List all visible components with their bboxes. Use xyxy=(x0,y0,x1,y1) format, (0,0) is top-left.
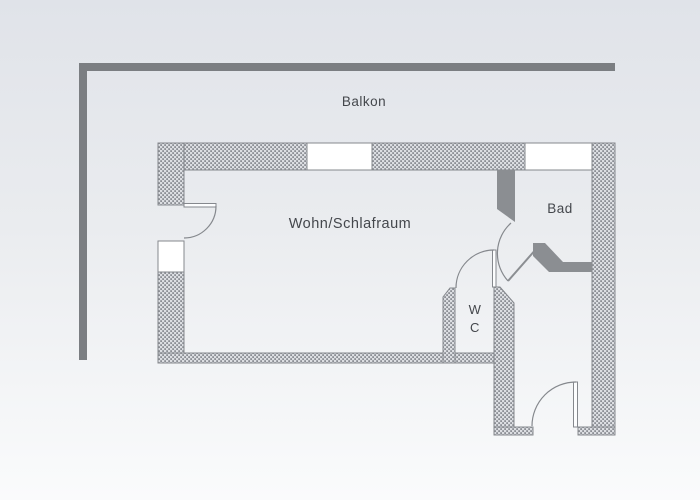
bath-door-arc xyxy=(497,223,511,281)
wc-right-wall xyxy=(494,287,514,435)
top-wall-window-right xyxy=(525,143,592,170)
wc-door-arc xyxy=(456,250,494,288)
wc-door-leaf xyxy=(493,250,497,287)
bottom-wall xyxy=(158,353,514,363)
entrance-door-leaf xyxy=(574,382,578,427)
exterior-walls xyxy=(158,143,615,435)
wc-label-line2: C xyxy=(470,320,480,335)
entry-wall-right xyxy=(578,427,615,435)
balcony-label: Balkon xyxy=(342,94,386,109)
balcony-railing-left xyxy=(79,63,87,360)
wc-left-wall xyxy=(443,288,455,363)
bath-door-leaf xyxy=(508,248,537,281)
bath-door xyxy=(497,223,537,281)
balcony-door xyxy=(184,204,216,239)
left-wall-window xyxy=(158,241,184,272)
entrance-door-arc xyxy=(532,382,576,426)
living-room-label: Wohn/Schlafraum xyxy=(289,216,411,232)
bath-partition-wall xyxy=(497,170,515,222)
bath-bottom-wall xyxy=(533,243,592,272)
top-wall-window-left xyxy=(307,143,372,170)
entry-wall-left xyxy=(494,427,533,435)
balcony-railing-top xyxy=(79,63,615,71)
wc-door xyxy=(456,250,496,288)
interior-solid-walls xyxy=(497,170,592,272)
right-wall xyxy=(592,143,615,435)
entrance-door xyxy=(532,382,578,427)
wc-label-line1: W xyxy=(469,302,482,317)
left-wall-lower xyxy=(158,272,184,363)
floor-plan-canvas: Balkon Wohn/Schlafraum Bad W C xyxy=(0,0,700,500)
room-labels: Balkon Wohn/Schlafraum Bad W C xyxy=(289,94,573,335)
balcony-door-arc xyxy=(184,206,216,238)
bath-label: Bad xyxy=(547,201,573,216)
floor-plan: Balkon Wohn/Schlafraum Bad W C xyxy=(0,0,700,500)
balcony-door-leaf xyxy=(184,204,216,208)
left-wall-upper xyxy=(158,143,184,205)
